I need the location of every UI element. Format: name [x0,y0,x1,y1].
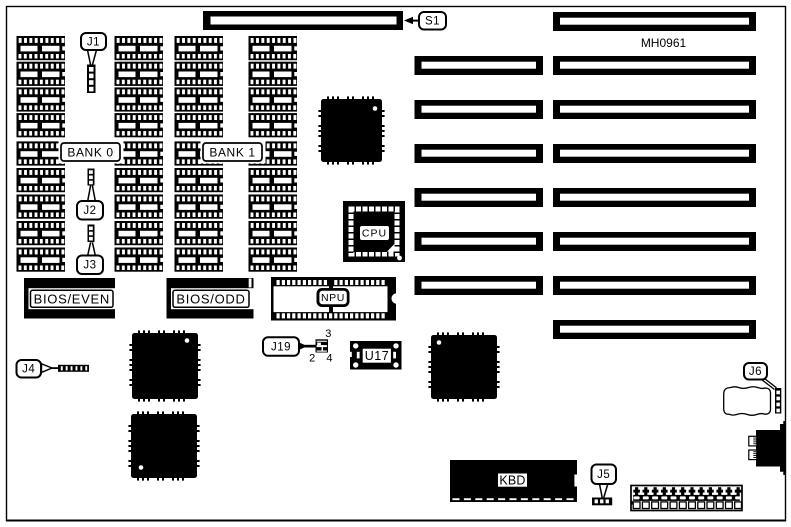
svg-text:J4: J4 [22,364,35,376]
svg-text:J19: J19 [271,341,291,353]
svg-text:3: 3 [325,328,331,340]
svg-text:J3: J3 [83,260,96,272]
svg-text:J6: J6 [749,366,762,378]
svg-text:U17: U17 [365,349,389,363]
svg-text:2: 2 [309,352,315,364]
svg-text:BIOS/ODD: BIOS/ODD [176,292,245,307]
svg-text:J2: J2 [83,205,96,217]
svg-text:4: 4 [326,352,332,364]
svg-text:S1: S1 [425,16,440,28]
svg-text:KBD: KBD [499,474,525,488]
svg-text:BANK 0: BANK 0 [67,146,113,160]
svg-text:BANK 1: BANK 1 [209,146,255,160]
svg-text:J1: J1 [87,36,100,48]
svg-text:BIOS/EVEN: BIOS/EVEN [34,292,110,307]
svg-text:MH0961: MH0961 [641,36,687,50]
svg-text:NPU: NPU [321,292,345,304]
svg-text:CPU: CPU [362,228,387,240]
svg-text:J5: J5 [597,469,610,481]
